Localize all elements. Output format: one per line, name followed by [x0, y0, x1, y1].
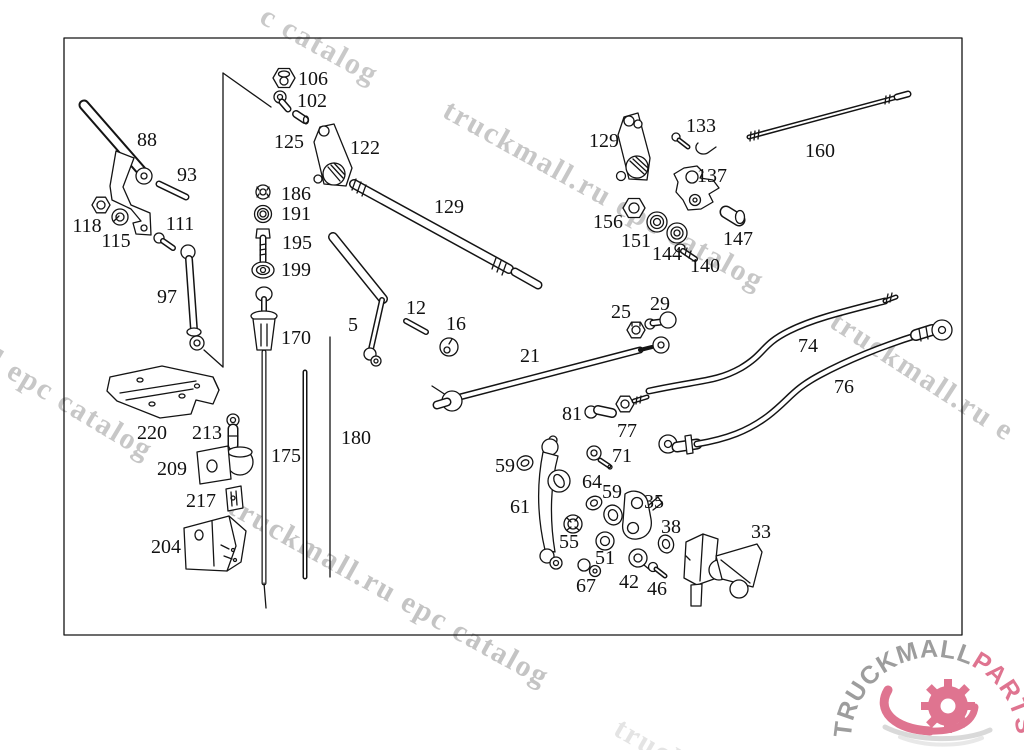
- part-64-washer: [584, 494, 604, 513]
- part-label-180: 180: [341, 427, 371, 449]
- part-125-plug: [296, 114, 309, 124]
- part-label-71: 71: [612, 445, 632, 467]
- part-label-38: 38: [661, 516, 681, 538]
- part-label-29: 29: [650, 293, 670, 315]
- part-label-129: 129: [434, 196, 464, 218]
- part-118-nut: [92, 197, 110, 213]
- part-label-125: 125: [274, 131, 304, 153]
- part-199-nut-washer: [252, 262, 274, 278]
- part-label-5: 5: [348, 314, 358, 336]
- part-label-59: 59: [495, 455, 515, 477]
- logo-arc-text: TRUCKMALLPARTS: [829, 635, 1024, 739]
- part-144-bushing: [667, 223, 687, 243]
- part-147-sleeve: [726, 211, 745, 224]
- part-label-51: 51: [595, 547, 615, 569]
- logo-gear-icon: [921, 679, 975, 733]
- part-label-88: 88: [137, 129, 157, 151]
- part-102-pin: [274, 91, 288, 109]
- part-186-castle-nut: [256, 185, 270, 199]
- watermark-text-5: truckmall.ru epc catalog: [223, 489, 556, 693]
- part-label-61: 61: [510, 496, 530, 518]
- part-25-nut: [627, 322, 645, 338]
- part-label-186: 186: [281, 183, 311, 205]
- part-213-bushing: [227, 414, 239, 445]
- part-label-217: 217: [186, 490, 216, 512]
- part-115-washer: [112, 209, 128, 225]
- watermark-text-2: truckmall.ru epc catalog: [438, 93, 771, 297]
- part-label-118: 118: [72, 215, 101, 237]
- part-156-nut: [623, 199, 645, 218]
- part-label-160: 160: [805, 140, 835, 162]
- part-71-grommet: [587, 446, 612, 469]
- part-label-122: 122: [350, 137, 380, 159]
- part-label-93: 93: [177, 164, 197, 186]
- part-16-snap-ring: [440, 338, 458, 356]
- part-label-137: 137: [697, 165, 727, 187]
- part-label-140: 140: [690, 255, 720, 277]
- part-label-76: 76: [834, 376, 854, 398]
- part-129-lever: [617, 113, 651, 181]
- part-label-102: 102: [297, 90, 327, 112]
- part-label-16: 16: [446, 313, 466, 335]
- part-label-25: 25: [611, 301, 631, 323]
- part-label-175: 175: [271, 445, 301, 467]
- part-label-46: 46: [647, 578, 667, 600]
- truckmall-logo: TRUCKMALLPARTS: [829, 635, 1024, 745]
- part-151-bushing: [647, 212, 667, 232]
- part-label-74: 74: [798, 335, 818, 357]
- part-label-144: 144: [652, 243, 682, 265]
- part-label-33: 33: [751, 521, 771, 543]
- part-label-147: 147: [723, 228, 753, 250]
- part-label-21: 21: [520, 345, 540, 367]
- part-label-156: 156: [593, 211, 623, 233]
- part-33-bracket: [684, 534, 762, 606]
- part-129-shaft: [352, 179, 538, 285]
- logo-brand-pink: PARTS: [968, 646, 1024, 736]
- part-195-bolt: [256, 229, 270, 261]
- part-12-pin: [406, 321, 426, 332]
- part-label-151: 151: [621, 230, 651, 252]
- part-label-55: 55: [559, 531, 579, 553]
- part-label-191: 191: [281, 203, 311, 225]
- part-160-rod: [749, 94, 908, 141]
- part-5-bent-lever: [333, 237, 383, 366]
- part-111-screw: [154, 233, 173, 248]
- part-209-clamp: [197, 446, 253, 484]
- part-label-77: 77: [617, 420, 637, 442]
- part-label-213: 213: [192, 422, 222, 444]
- part-97-link-rod: [181, 245, 204, 350]
- part-label-67: 67: [576, 575, 596, 597]
- part-label-59: 59: [602, 481, 622, 503]
- part-label-199: 199: [281, 259, 311, 281]
- part-59-washer-right: [601, 503, 625, 528]
- part-46-screw: [649, 563, 666, 577]
- part-42-grommet: [629, 549, 650, 570]
- part-label-81: 81: [562, 403, 582, 425]
- part-label-64: 64: [582, 471, 602, 493]
- part-label-129: 129: [589, 130, 619, 152]
- part-label-111: 111: [166, 213, 195, 235]
- part-label-97: 97: [157, 286, 177, 308]
- part-label-106: 106: [298, 68, 328, 90]
- part-106-nut: [273, 69, 295, 88]
- part-label-195: 195: [282, 232, 312, 254]
- part-label-35: 35: [644, 491, 664, 513]
- logo-swirl-icon: [884, 690, 930, 731]
- part-122-lever: [314, 124, 352, 186]
- exploded-parts-diagram: c catalogtruckmall.ru epc catalogtruckma…: [0, 0, 1024, 750]
- part-label-204: 204: [151, 536, 181, 558]
- part-220-plate: [107, 366, 219, 418]
- part-label-220: 220: [137, 422, 167, 444]
- part-label-42: 42: [619, 571, 639, 593]
- part-label-133: 133: [686, 115, 716, 137]
- part-77-nut: [616, 396, 647, 412]
- parts-catalog-page: c catalogtruckmall.ru epc catalogtruckma…: [0, 0, 1024, 750]
- part-label-12: 12: [406, 297, 426, 319]
- part-81-pin: [585, 406, 612, 418]
- part-191-washer: [255, 206, 272, 223]
- part-label-115: 115: [101, 230, 130, 252]
- part-label-209: 209: [157, 458, 187, 480]
- part-204-bracket: [184, 516, 246, 571]
- watermark-text-6: truckmall.ru: [609, 711, 788, 750]
- part-217-clip: [226, 486, 243, 511]
- part-59-washer-left: [515, 453, 535, 472]
- part-label-170: 170: [281, 327, 311, 349]
